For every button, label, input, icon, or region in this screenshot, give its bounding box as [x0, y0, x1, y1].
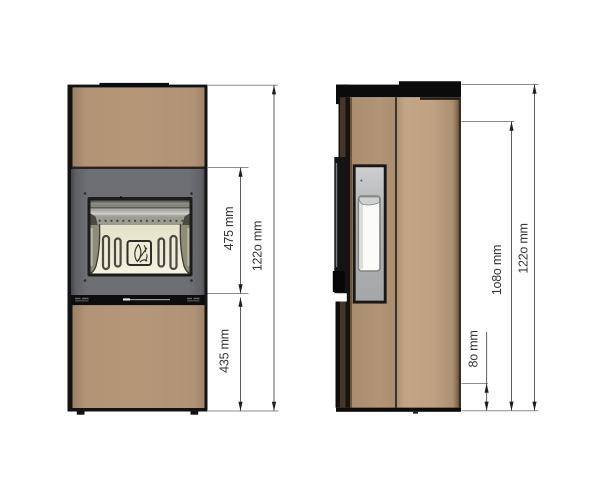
- svg-text:122o mm: 122o mm: [517, 223, 531, 273]
- svg-text:1o8o mm: 1o8o mm: [490, 245, 504, 295]
- svg-text:8o mm: 8o mm: [466, 331, 480, 368]
- svg-text:122o mm: 122o mm: [251, 221, 265, 271]
- svg-text:435 mm: 435 mm: [217, 329, 231, 373]
- svg-text:475 mm: 475 mm: [222, 207, 236, 251]
